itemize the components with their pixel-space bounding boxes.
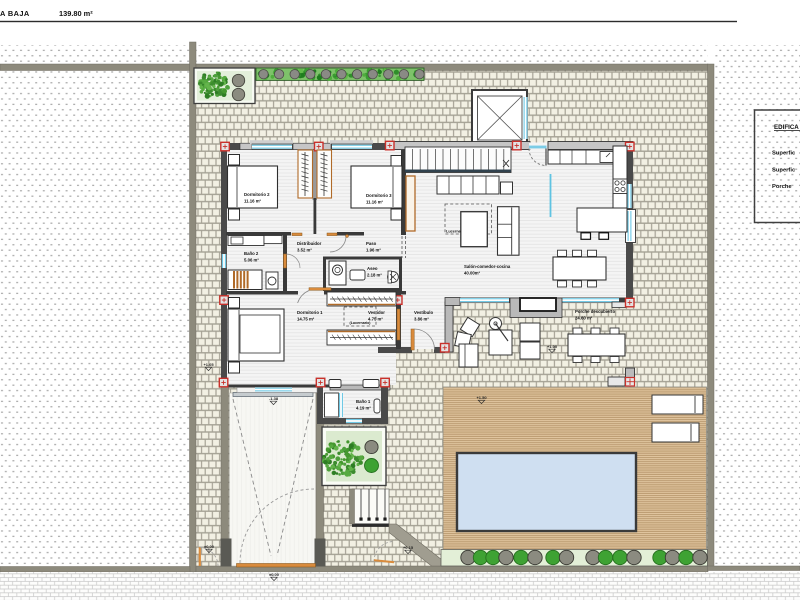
svg-text:+1.05: +1.05	[203, 362, 214, 367]
svg-text:Superfic: Superfic	[772, 168, 796, 174]
svg-text:(Lucernario): (Lucernario)	[350, 321, 372, 325]
svg-text:139.80 m²: 139.80 m²	[59, 9, 93, 18]
svg-text:Aseo: Aseo	[367, 266, 378, 271]
svg-text:EDIFICA: EDIFICA	[774, 124, 799, 131]
svg-text:+0.15: +0.15	[403, 545, 414, 550]
svg-text:1.96 m²: 1.96 m²	[366, 248, 381, 253]
svg-text:Salón-comedor-cocina: Salón-comedor-cocina	[464, 264, 511, 269]
svg-text:±0.00: ±0.00	[269, 572, 280, 577]
svg-text:+1.00: +1.00	[547, 344, 558, 349]
svg-text:Superfic: Superfic	[772, 151, 796, 157]
svg-text:Vestíbulo: Vestíbulo	[414, 310, 433, 315]
svg-text:40.00m²: 40.00m²	[464, 271, 481, 276]
svg-text:Porche descubierto: Porche descubierto	[575, 309, 615, 314]
svg-text:-1.38: -1.38	[269, 396, 279, 401]
svg-text:5.06 m²: 5.06 m²	[244, 258, 259, 263]
svg-text:3.52 m²: 3.52 m²	[297, 248, 312, 253]
svg-text:11.16 m²: 11.16 m²	[366, 200, 384, 205]
svg-text:+1.50: +1.50	[476, 395, 487, 400]
svg-text:Paso: Paso	[366, 241, 377, 246]
svg-text:4.19 m²: 4.19 m²	[356, 406, 371, 411]
svg-text:Dormitorio 3: Dormitorio 3	[366, 193, 392, 198]
svg-text:Baño 2: Baño 2	[244, 251, 259, 256]
svg-text:3.86 m²: 3.86 m²	[414, 317, 429, 322]
svg-text:11.16 m²: 11.16 m²	[244, 199, 262, 204]
svg-text:Dormitorio 2: Dormitorio 2	[244, 192, 270, 197]
svg-text:Distribuidor: Distribuidor	[297, 241, 322, 246]
svg-text:14.75 m²: 14.75 m²	[297, 317, 315, 322]
svg-text:Baño 1: Baño 1	[356, 399, 371, 404]
svg-text:A BAJA: A BAJA	[0, 9, 30, 18]
svg-text:Vestidor: Vestidor	[368, 310, 385, 315]
svg-text:Dormitorio 1: Dormitorio 1	[297, 310, 323, 315]
svg-text:Porche: Porche	[772, 184, 792, 190]
svg-text:2.18 m²: 2.18 m²	[367, 273, 382, 278]
svg-text:24.60 m²: 24.60 m²	[575, 316, 593, 321]
svg-text:±0.00: ±0.00	[204, 544, 215, 549]
